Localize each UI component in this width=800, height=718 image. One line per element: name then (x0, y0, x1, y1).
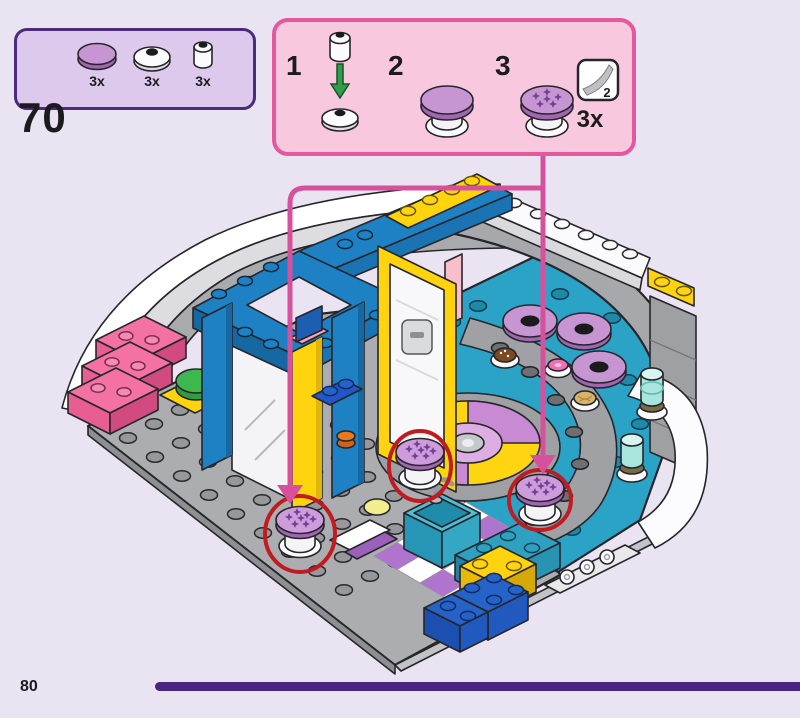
part-count: 3x (75, 73, 119, 89)
substeps-panel: 1 2 3 2 3x (272, 18, 636, 156)
donut-tile-pink (545, 359, 571, 378)
drink-cup (617, 434, 647, 482)
part-count: 3x (181, 73, 225, 89)
stool-right (516, 475, 564, 526)
purple-table (557, 313, 611, 350)
instruction-page: 3x 3x 3x 70 1 2 3 2 3x 80 (0, 0, 800, 718)
part-round-brick-white-icon (181, 35, 225, 75)
purple-table (503, 305, 557, 342)
sticker-sheet-number: 2 (603, 85, 610, 100)
place-arrow-icon (331, 64, 349, 98)
substep-1-diagram (308, 26, 372, 140)
stool-middle (396, 439, 444, 490)
yellow-round-tile (364, 499, 390, 515)
page-number: 80 (20, 678, 38, 696)
substep-2-number: 2 (388, 50, 404, 82)
part-count: 3x (130, 73, 174, 89)
purple-table (572, 351, 626, 388)
progress-bar (155, 682, 800, 691)
sticker-sheet-icon: 2 (576, 58, 620, 102)
drink-cup (637, 368, 667, 420)
donut-tile-chocolate (491, 348, 519, 368)
step-number: 70 (18, 94, 67, 142)
donut-tile-waffle (571, 391, 599, 411)
substep-quantity: 3x (562, 106, 618, 134)
substep-1-number: 1 (286, 50, 302, 82)
part-round-tile-purple-icon (75, 35, 119, 75)
orange-knob (337, 431, 355, 448)
stool-left (276, 507, 324, 558)
part-round-plate-white-icon (130, 37, 174, 75)
substep-2-diagram (408, 62, 486, 142)
